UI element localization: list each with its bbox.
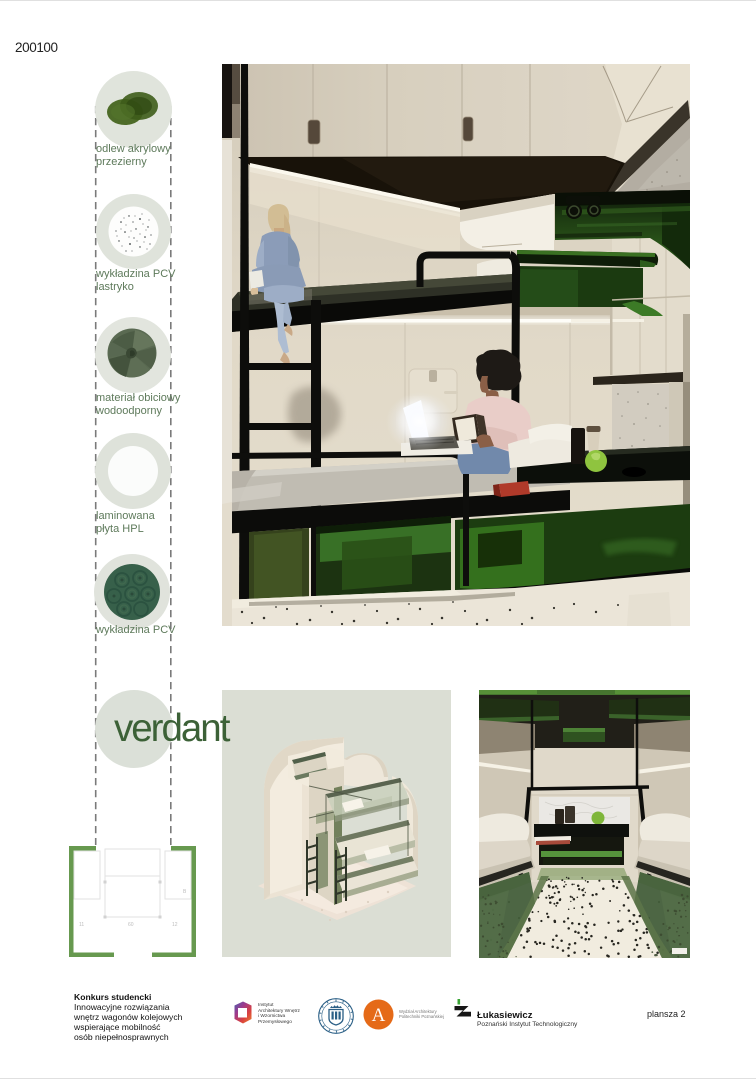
- svg-text:12: 12: [172, 922, 178, 928]
- svg-text:11: 11: [79, 922, 84, 928]
- svg-text:B: B: [183, 889, 187, 895]
- svg-text:A: A: [372, 1005, 386, 1026]
- svg-text:60: 60: [128, 922, 134, 928]
